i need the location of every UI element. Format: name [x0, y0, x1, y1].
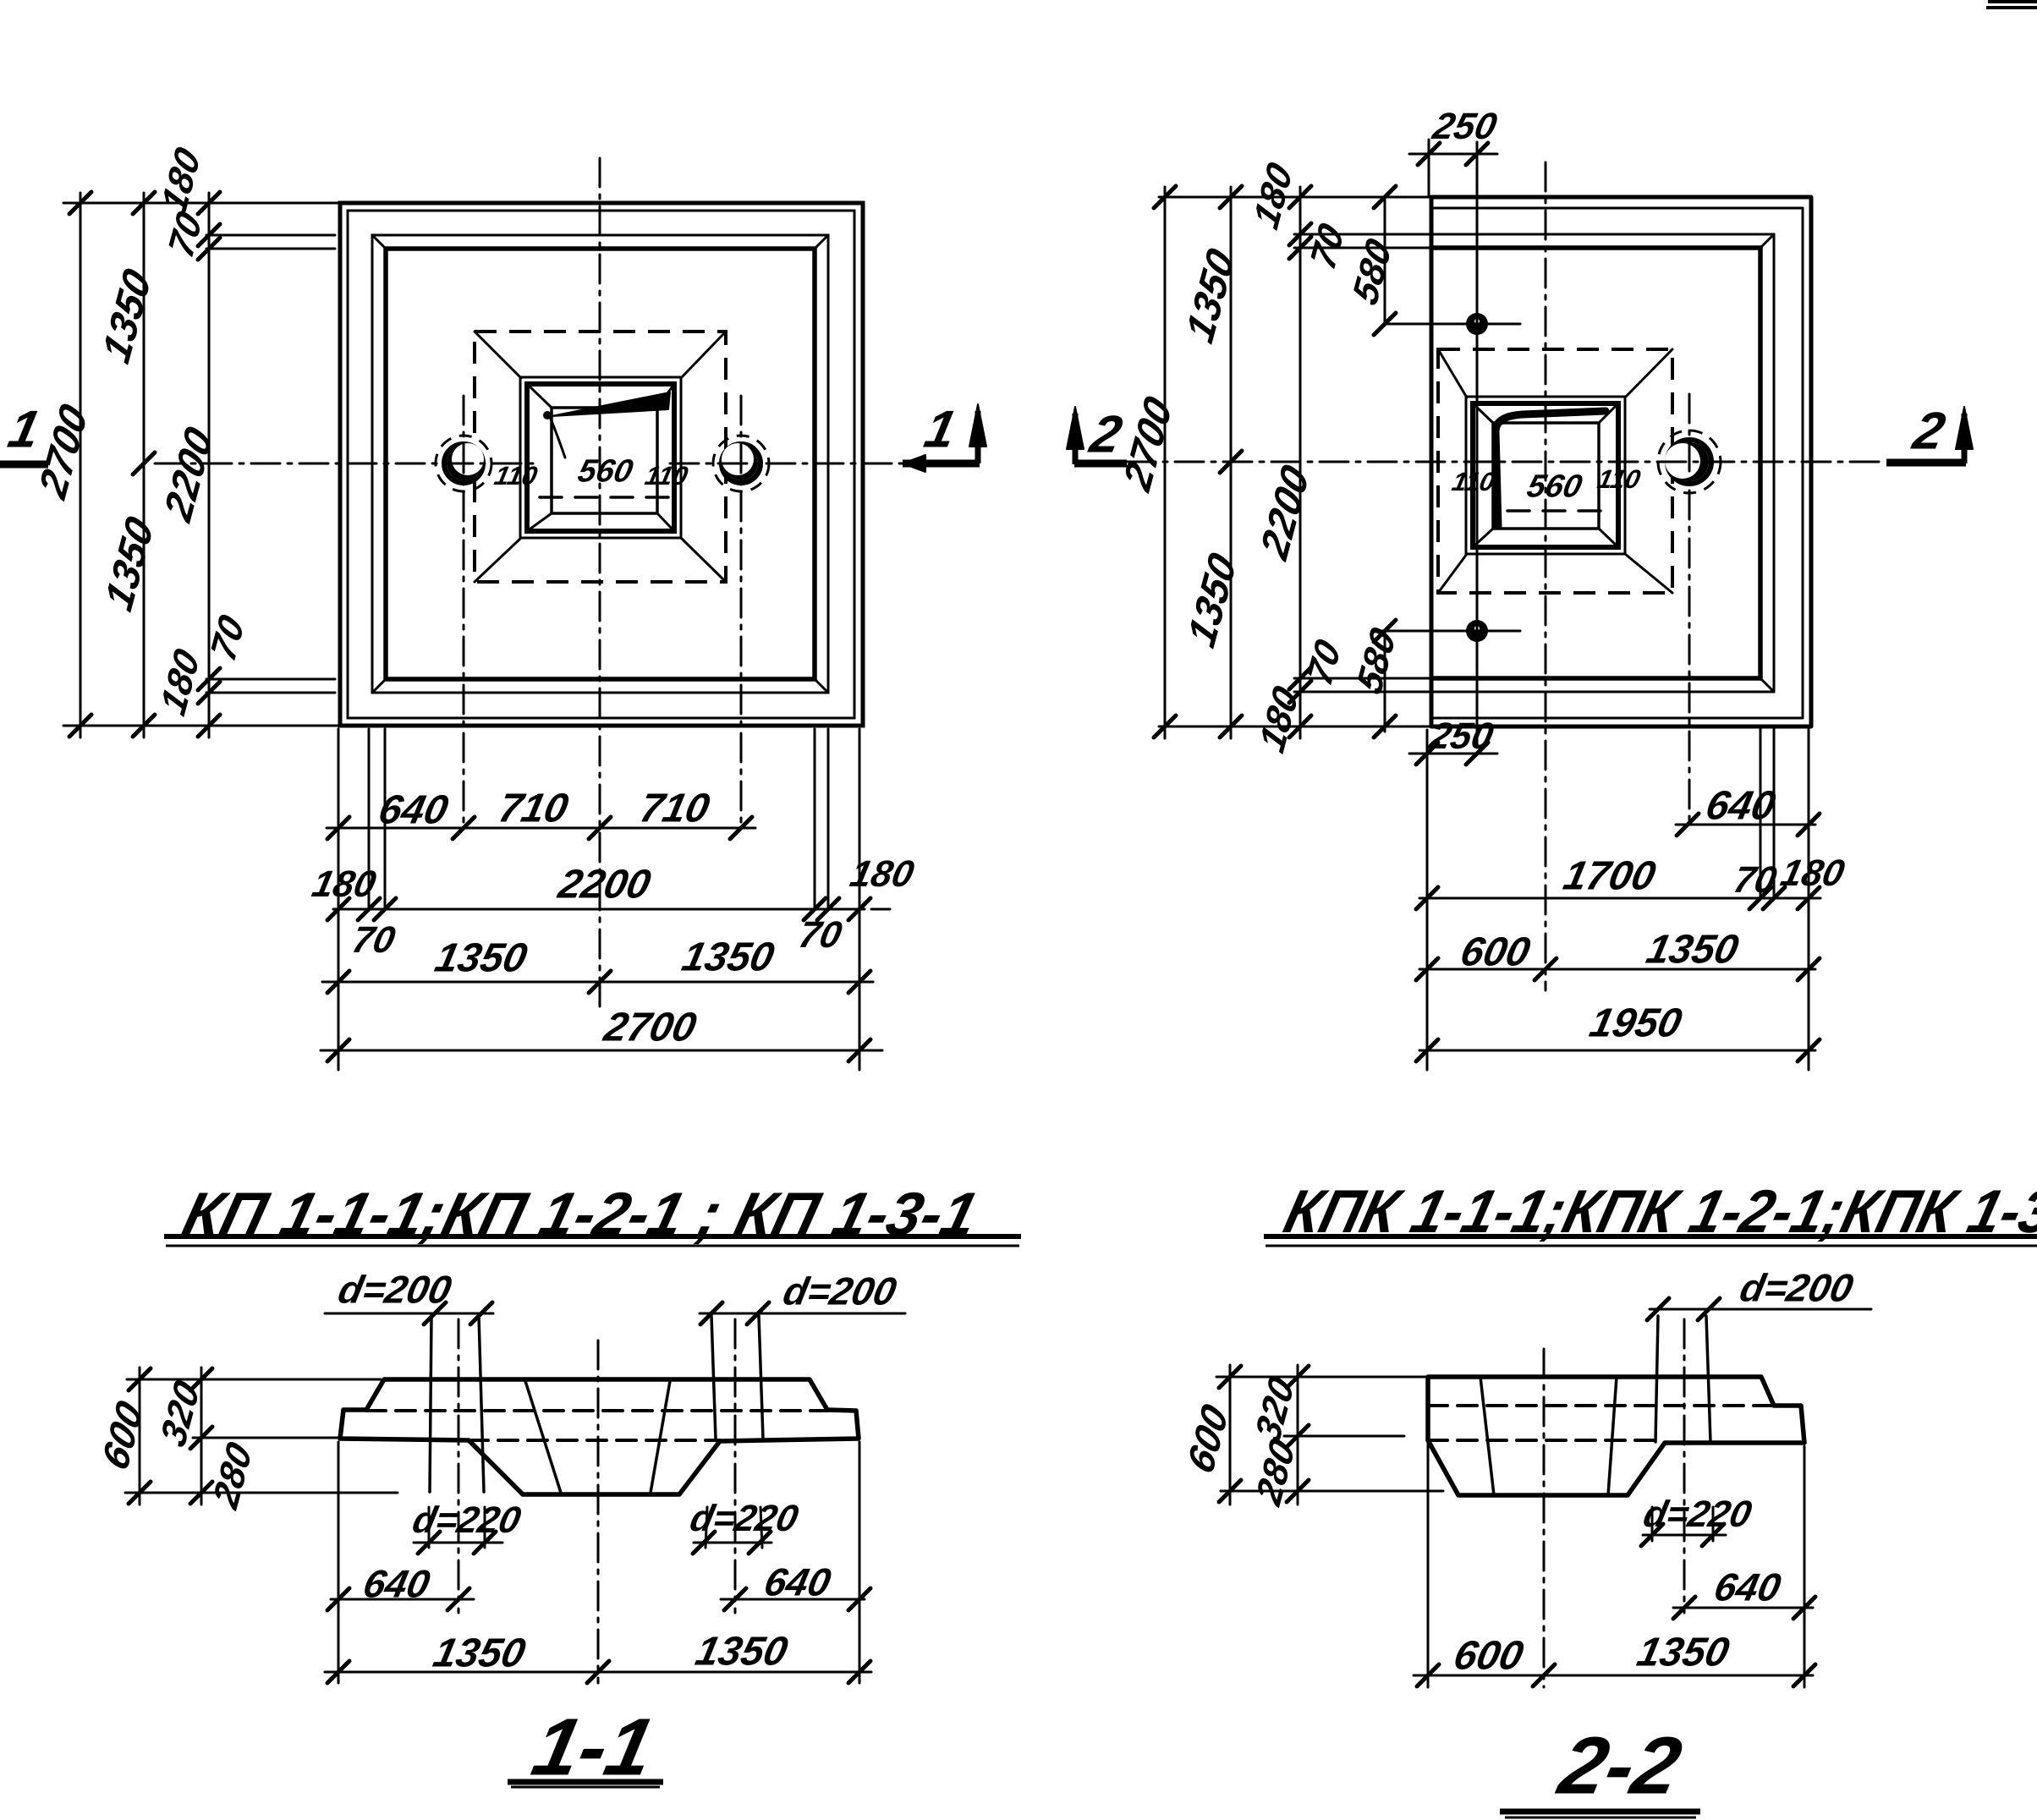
svg-text:d=200: d=200: [780, 1269, 901, 1313]
svg-text:180: 180: [847, 853, 918, 894]
svg-text:600: 600: [1450, 1633, 1527, 1678]
svg-text:710: 710: [495, 786, 572, 831]
svg-text:640: 640: [1710, 1565, 1785, 1609]
svg-text:250: 250: [1429, 106, 1501, 146]
svg-text:110: 110: [1595, 464, 1643, 494]
svg-text:1350: 1350: [678, 935, 778, 979]
svg-text:560: 560: [1524, 469, 1585, 505]
svg-text:1‑1: 1‑1: [525, 1702, 662, 1793]
svg-text:180: 180: [309, 863, 380, 904]
svg-text:110: 110: [491, 461, 540, 491]
svg-text:640: 640: [375, 787, 452, 832]
svg-text:640: 640: [1702, 783, 1779, 828]
svg-text:1350: 1350: [430, 1631, 530, 1675]
svg-text:560: 560: [575, 453, 636, 490]
svg-text:250: 250: [1425, 715, 1497, 756]
svg-text:1700: 1700: [1560, 853, 1660, 898]
svg-text:710: 710: [636, 786, 713, 831]
svg-text:1350: 1350: [431, 935, 531, 980]
svg-text:110: 110: [1449, 467, 1497, 496]
svg-text:1350: 1350: [1643, 927, 1743, 972]
svg-text:2‑2: 2‑2: [1551, 1720, 1689, 1812]
svg-text:110: 110: [642, 461, 690, 491]
svg-text:d=200: d=200: [1737, 1266, 1858, 1309]
svg-text:1350: 1350: [1633, 1630, 1733, 1675]
svg-text:d=200: d=200: [335, 1268, 456, 1311]
svg-text:180: 180: [1777, 852, 1848, 893]
svg-text:d=220: d=220: [409, 1499, 525, 1540]
svg-text:1950: 1950: [1586, 1000, 1686, 1045]
svg-text:1350: 1350: [692, 1629, 792, 1674]
svg-text:2200: 2200: [554, 862, 655, 907]
svg-text:640: 640: [360, 1562, 434, 1605]
svg-text:d=220: d=220: [687, 1498, 803, 1538]
svg-text:600: 600: [1457, 929, 1534, 974]
svg-text:2700: 2700: [600, 1005, 700, 1050]
svg-text:640: 640: [760, 1560, 835, 1603]
